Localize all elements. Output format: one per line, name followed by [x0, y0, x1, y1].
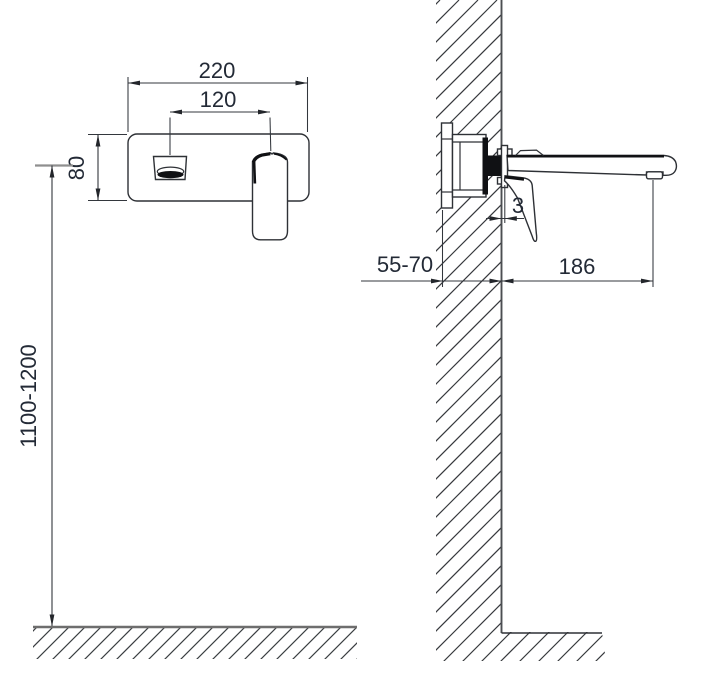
- hatch-line: [44, 0, 713, 675]
- spout-front-view: [154, 157, 187, 180]
- dimension-mounting-height: 1100-1200: [16, 166, 73, 627]
- aerator-outlet: [647, 172, 663, 179]
- faucet-installation-drawing: 3 55-70 186: [0, 0, 713, 675]
- floor-hatching: [0, 0, 713, 675]
- arrowhead: [96, 189, 101, 201]
- hatch-line: [0, 0, 516, 675]
- dimension-text-186: 186: [559, 254, 596, 279]
- hatch-line: [0, 0, 573, 675]
- hatch-line: [367, 0, 713, 675]
- hatch-line: [44, 0, 713, 675]
- hatch-line: [158, 0, 713, 675]
- hatch-line: [12, 0, 712, 675]
- hatch-line: [0, 0, 696, 675]
- hatch-line: [0, 0, 649, 675]
- cartridge-stem: [488, 156, 502, 177]
- dimension-text-120: 120: [200, 87, 237, 112]
- hatch-line: [300, 0, 713, 675]
- dimension-text-80: 80: [64, 156, 89, 180]
- arrowhead: [96, 135, 101, 147]
- hatch-line: [28, 0, 713, 675]
- hatch-line: [310, 0, 713, 675]
- hatch-line: [329, 0, 713, 675]
- arrowhead: [170, 110, 182, 115]
- hatch-line: [156, 0, 713, 675]
- cartridge-cap-profile: [516, 150, 544, 155]
- handle-body: [253, 153, 288, 240]
- hatch-line: [204, 0, 713, 675]
- arrowhead: [50, 615, 55, 627]
- hatch-line: [172, 0, 713, 675]
- spout-opening-shadow: [158, 171, 184, 178]
- hatch-line: [0, 0, 664, 675]
- arrowhead: [50, 166, 55, 178]
- handle-side-shadow: [254, 162, 255, 184]
- arrowhead: [641, 279, 653, 284]
- dimension-plate-height: 80: [64, 135, 127, 201]
- hatch-line: [316, 0, 713, 675]
- arrowhead: [128, 81, 140, 86]
- hatch-line: [0, 0, 680, 675]
- hatch-line: [92, 0, 713, 675]
- arrowhead: [431, 279, 443, 284]
- hatch-line: [386, 0, 713, 675]
- valve-mounting-bracket: [442, 123, 453, 208]
- dimension-text-1100-1200: 1100-1200: [16, 344, 41, 448]
- hatch-line: [519, 0, 713, 675]
- hatch-line: [6, 0, 706, 675]
- dimension-wall-embed-depth: 55-70: [361, 210, 502, 287]
- spout-side-view: [507, 150, 676, 179]
- front-view: 220 120 80 1100-1200: [0, 0, 713, 675]
- arrowhead: [502, 279, 514, 284]
- hatch-line: [0, 0, 592, 675]
- hatch-line: [0, 0, 478, 675]
- hatch-line: [0, 0, 630, 675]
- technical-drawing-canvas: 3 55-70 186: [0, 0, 713, 675]
- valve-housing: [453, 135, 487, 198]
- hatch-line: [348, 0, 713, 675]
- dimension-text-55-70: 55-70: [377, 252, 433, 277]
- hatch-line: [0, 0, 668, 675]
- dimension-text-220: 220: [199, 58, 236, 83]
- hatch-line: [220, 0, 713, 675]
- wall-section-hatching: [0, 0, 713, 675]
- hatch-line: [82, 0, 713, 675]
- handle-front-view: [253, 153, 288, 240]
- floor-left: [0, 0, 713, 675]
- arrowhead: [258, 110, 270, 115]
- hatch-line: [443, 0, 713, 675]
- side-view: 3 55-70 186: [0, 0, 713, 675]
- hatch-line: [405, 0, 713, 675]
- hatch-line: [101, 0, 713, 675]
- hatch-line: [500, 0, 713, 675]
- hatch-line: [76, 0, 713, 675]
- hatch-line: [63, 0, 713, 675]
- hatch-line: [557, 0, 713, 675]
- hatch-line: [538, 0, 713, 675]
- hatch-line: [284, 0, 713, 675]
- hatch-line: [0, 0, 554, 675]
- arrowhead: [296, 81, 308, 86]
- hatch-line: [188, 0, 713, 675]
- hatch-line: [60, 0, 713, 675]
- hatch-line: [424, 0, 713, 675]
- hatch-line: [0, 0, 687, 675]
- dimension-text-3: 3: [512, 193, 524, 218]
- hatch-line: [0, 0, 611, 675]
- arrowhead: [490, 216, 502, 221]
- valve-seal-strip: [483, 138, 489, 195]
- hatch-line: [0, 0, 497, 675]
- hatch-line: [462, 0, 713, 675]
- hatch-line: [481, 0, 713, 675]
